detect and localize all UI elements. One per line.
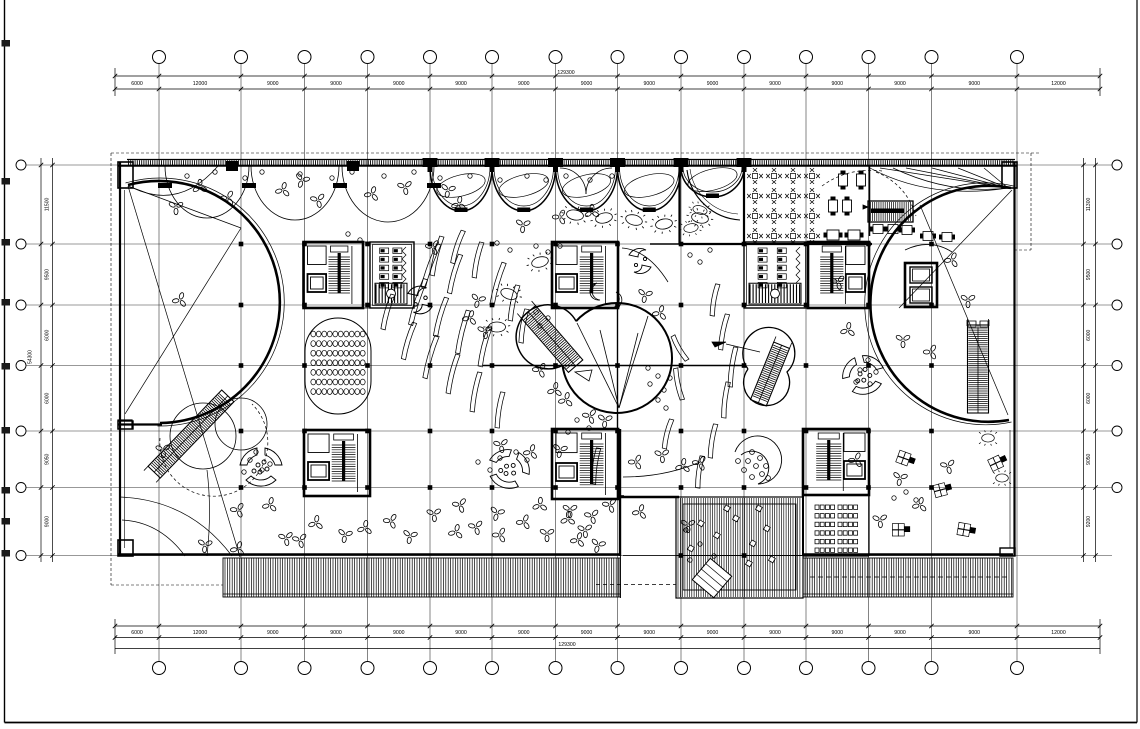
svg-text:9000: 9000 — [643, 81, 655, 87]
svg-text:12000: 12000 — [1051, 81, 1066, 87]
svg-text:9000: 9000 — [267, 81, 279, 87]
svg-text:9000: 9000 — [393, 81, 405, 87]
svg-text:6000: 6000 — [45, 392, 51, 403]
svg-text:9000: 9000 — [894, 630, 906, 636]
svg-text:12000: 12000 — [193, 630, 208, 636]
svg-text:9050: 9050 — [1086, 453, 1092, 464]
svg-text:9200: 9200 — [1086, 516, 1092, 527]
svg-text:129300: 129300 — [557, 70, 574, 76]
svg-text:9000: 9000 — [455, 630, 467, 636]
svg-text:9000: 9000 — [968, 630, 980, 636]
svg-text:9000: 9000 — [707, 630, 719, 636]
svg-text:9000: 9000 — [769, 630, 781, 636]
svg-text:9500: 9500 — [1086, 269, 1092, 280]
svg-text:9000: 9000 — [518, 630, 530, 636]
svg-text:54300: 54300 — [28, 350, 34, 364]
svg-text:9000: 9000 — [455, 81, 467, 87]
svg-text:9000: 9000 — [894, 81, 906, 87]
svg-text:6000: 6000 — [1086, 329, 1092, 340]
svg-text:6000: 6000 — [131, 630, 143, 636]
svg-text:12000: 12000 — [1051, 630, 1066, 636]
svg-text:9000: 9000 — [518, 81, 530, 87]
svg-text:9050: 9050 — [45, 453, 51, 464]
svg-text:9000: 9000 — [831, 630, 843, 636]
svg-text:9000: 9000 — [581, 81, 593, 87]
svg-text:9000: 9000 — [45, 516, 51, 527]
svg-text:6000: 6000 — [1086, 392, 1092, 403]
svg-text:11500: 11500 — [45, 198, 51, 212]
svg-text:9000: 9000 — [267, 630, 279, 636]
svg-text:9000: 9000 — [393, 630, 405, 636]
svg-text:11300: 11300 — [1086, 198, 1092, 212]
svg-text:9500: 9500 — [45, 269, 51, 280]
svg-text:6000: 6000 — [131, 81, 143, 87]
svg-text:9000: 9000 — [769, 81, 781, 87]
svg-text:9000: 9000 — [831, 81, 843, 87]
svg-text:6000: 6000 — [45, 329, 51, 340]
svg-text:129300: 129300 — [558, 642, 575, 648]
svg-text:9000: 9000 — [643, 630, 655, 636]
svg-text:12000: 12000 — [193, 81, 208, 87]
svg-text:9000: 9000 — [330, 81, 342, 87]
svg-text:9000: 9000 — [330, 630, 342, 636]
svg-text:9000: 9000 — [581, 630, 593, 636]
svg-text:9000: 9000 — [968, 81, 980, 87]
svg-text:9000: 9000 — [707, 81, 719, 87]
